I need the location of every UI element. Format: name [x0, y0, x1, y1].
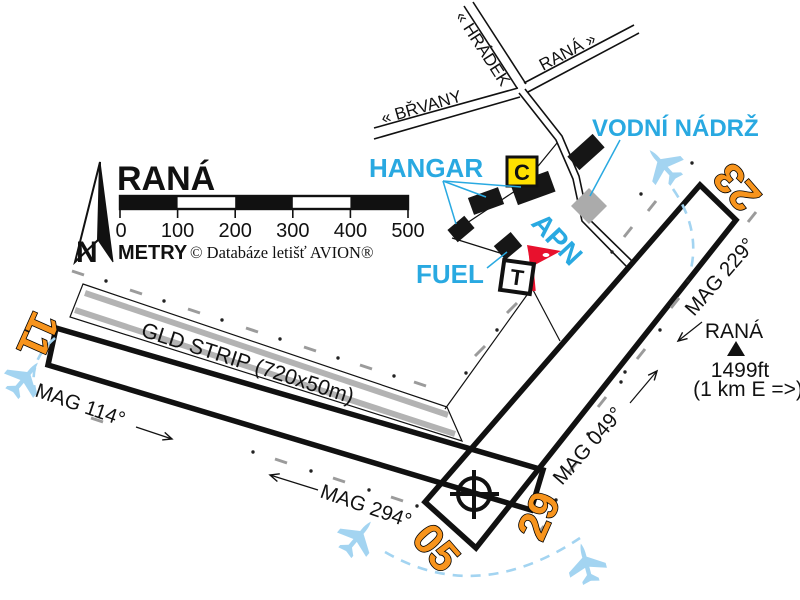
- c-sign-letter: C: [514, 160, 530, 185]
- water-reservoir-label: VODNÍ NÁDRŽ: [592, 114, 759, 142]
- peak-triangle-icon: [727, 341, 745, 356]
- chart-title: RANÁ: [117, 160, 215, 198]
- signal-square-sign: T: [500, 260, 534, 294]
- scale-tick-500: 500: [391, 220, 424, 242]
- scale-tick-200: 200: [219, 220, 252, 242]
- fuel-label: FUEL: [416, 259, 484, 289]
- c-sign: C: [507, 157, 537, 186]
- site-distance: (1 km E =>): [693, 378, 800, 401]
- copyright: © Databáze letišť AVION®: [190, 243, 373, 262]
- hangar-label: HANGAR: [369, 153, 483, 183]
- scale-unit: METRY: [118, 242, 188, 264]
- north-arrow-icon: N: [75, 162, 113, 269]
- building: [447, 216, 474, 242]
- runway-23-label: 23: [704, 154, 770, 220]
- scale-tick-100: 100: [161, 220, 194, 242]
- chart-canvas: « BŘVANY « HRÁDEK RANÁ » GLD STRIP (720x…: [0, 0, 800, 600]
- scale-tick-300: 300: [276, 220, 309, 242]
- north-letter: N: [76, 236, 98, 269]
- scale-tick-400: 400: [334, 220, 367, 242]
- airfield-chart-rana: « BŘVANY « HRÁDEK RANÁ » GLD STRIP (720x…: [0, 0, 800, 600]
- road-label-rana: RANÁ »: [536, 29, 599, 75]
- scale-tick-0: 0: [115, 220, 126, 242]
- road-label-hradek: « HRÁDEK: [452, 8, 515, 90]
- airplane-icon: [635, 137, 690, 193]
- site-name: RANÁ: [705, 320, 763, 343]
- fuel-building: [494, 232, 522, 260]
- runway-05-label: 05: [403, 515, 469, 581]
- road-label-brvany: « BŘVANY: [379, 87, 464, 128]
- mag-294-label: MAG 294°: [317, 480, 414, 533]
- airplane-icon: [562, 539, 609, 588]
- apron-boundary: [445, 288, 560, 409]
- scale-bar: 0 100 200 300 400 500 METRY © Databáze l…: [115, 196, 424, 264]
- site-info: RANÁ 1499ft (1 km E =>): [693, 320, 800, 401]
